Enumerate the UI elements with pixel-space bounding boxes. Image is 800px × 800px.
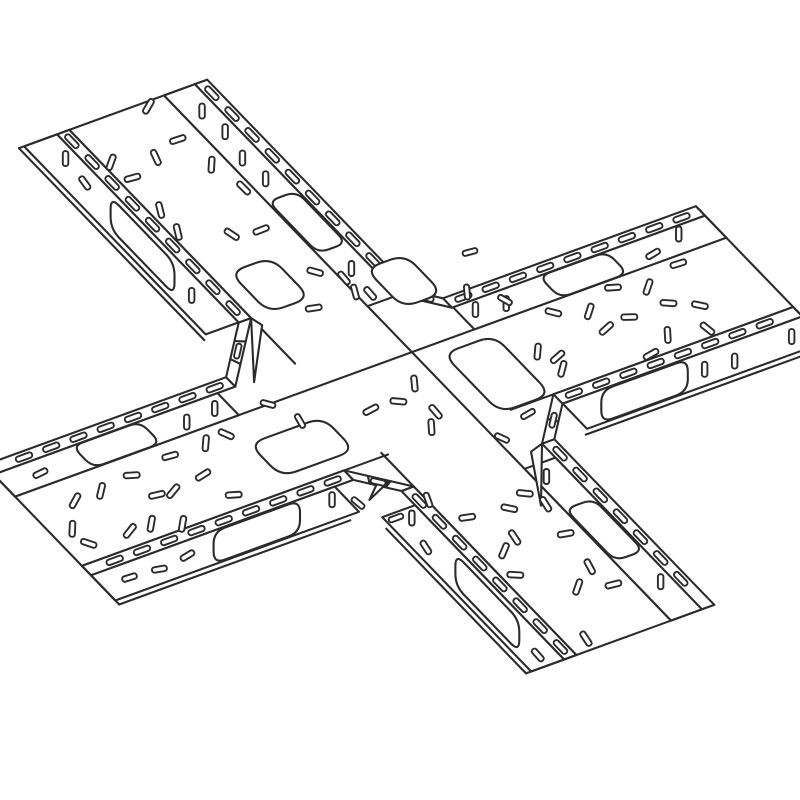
diagram-canvas — [0, 0, 800, 800]
cable-tray-cross-diagram — [0, 0, 800, 800]
